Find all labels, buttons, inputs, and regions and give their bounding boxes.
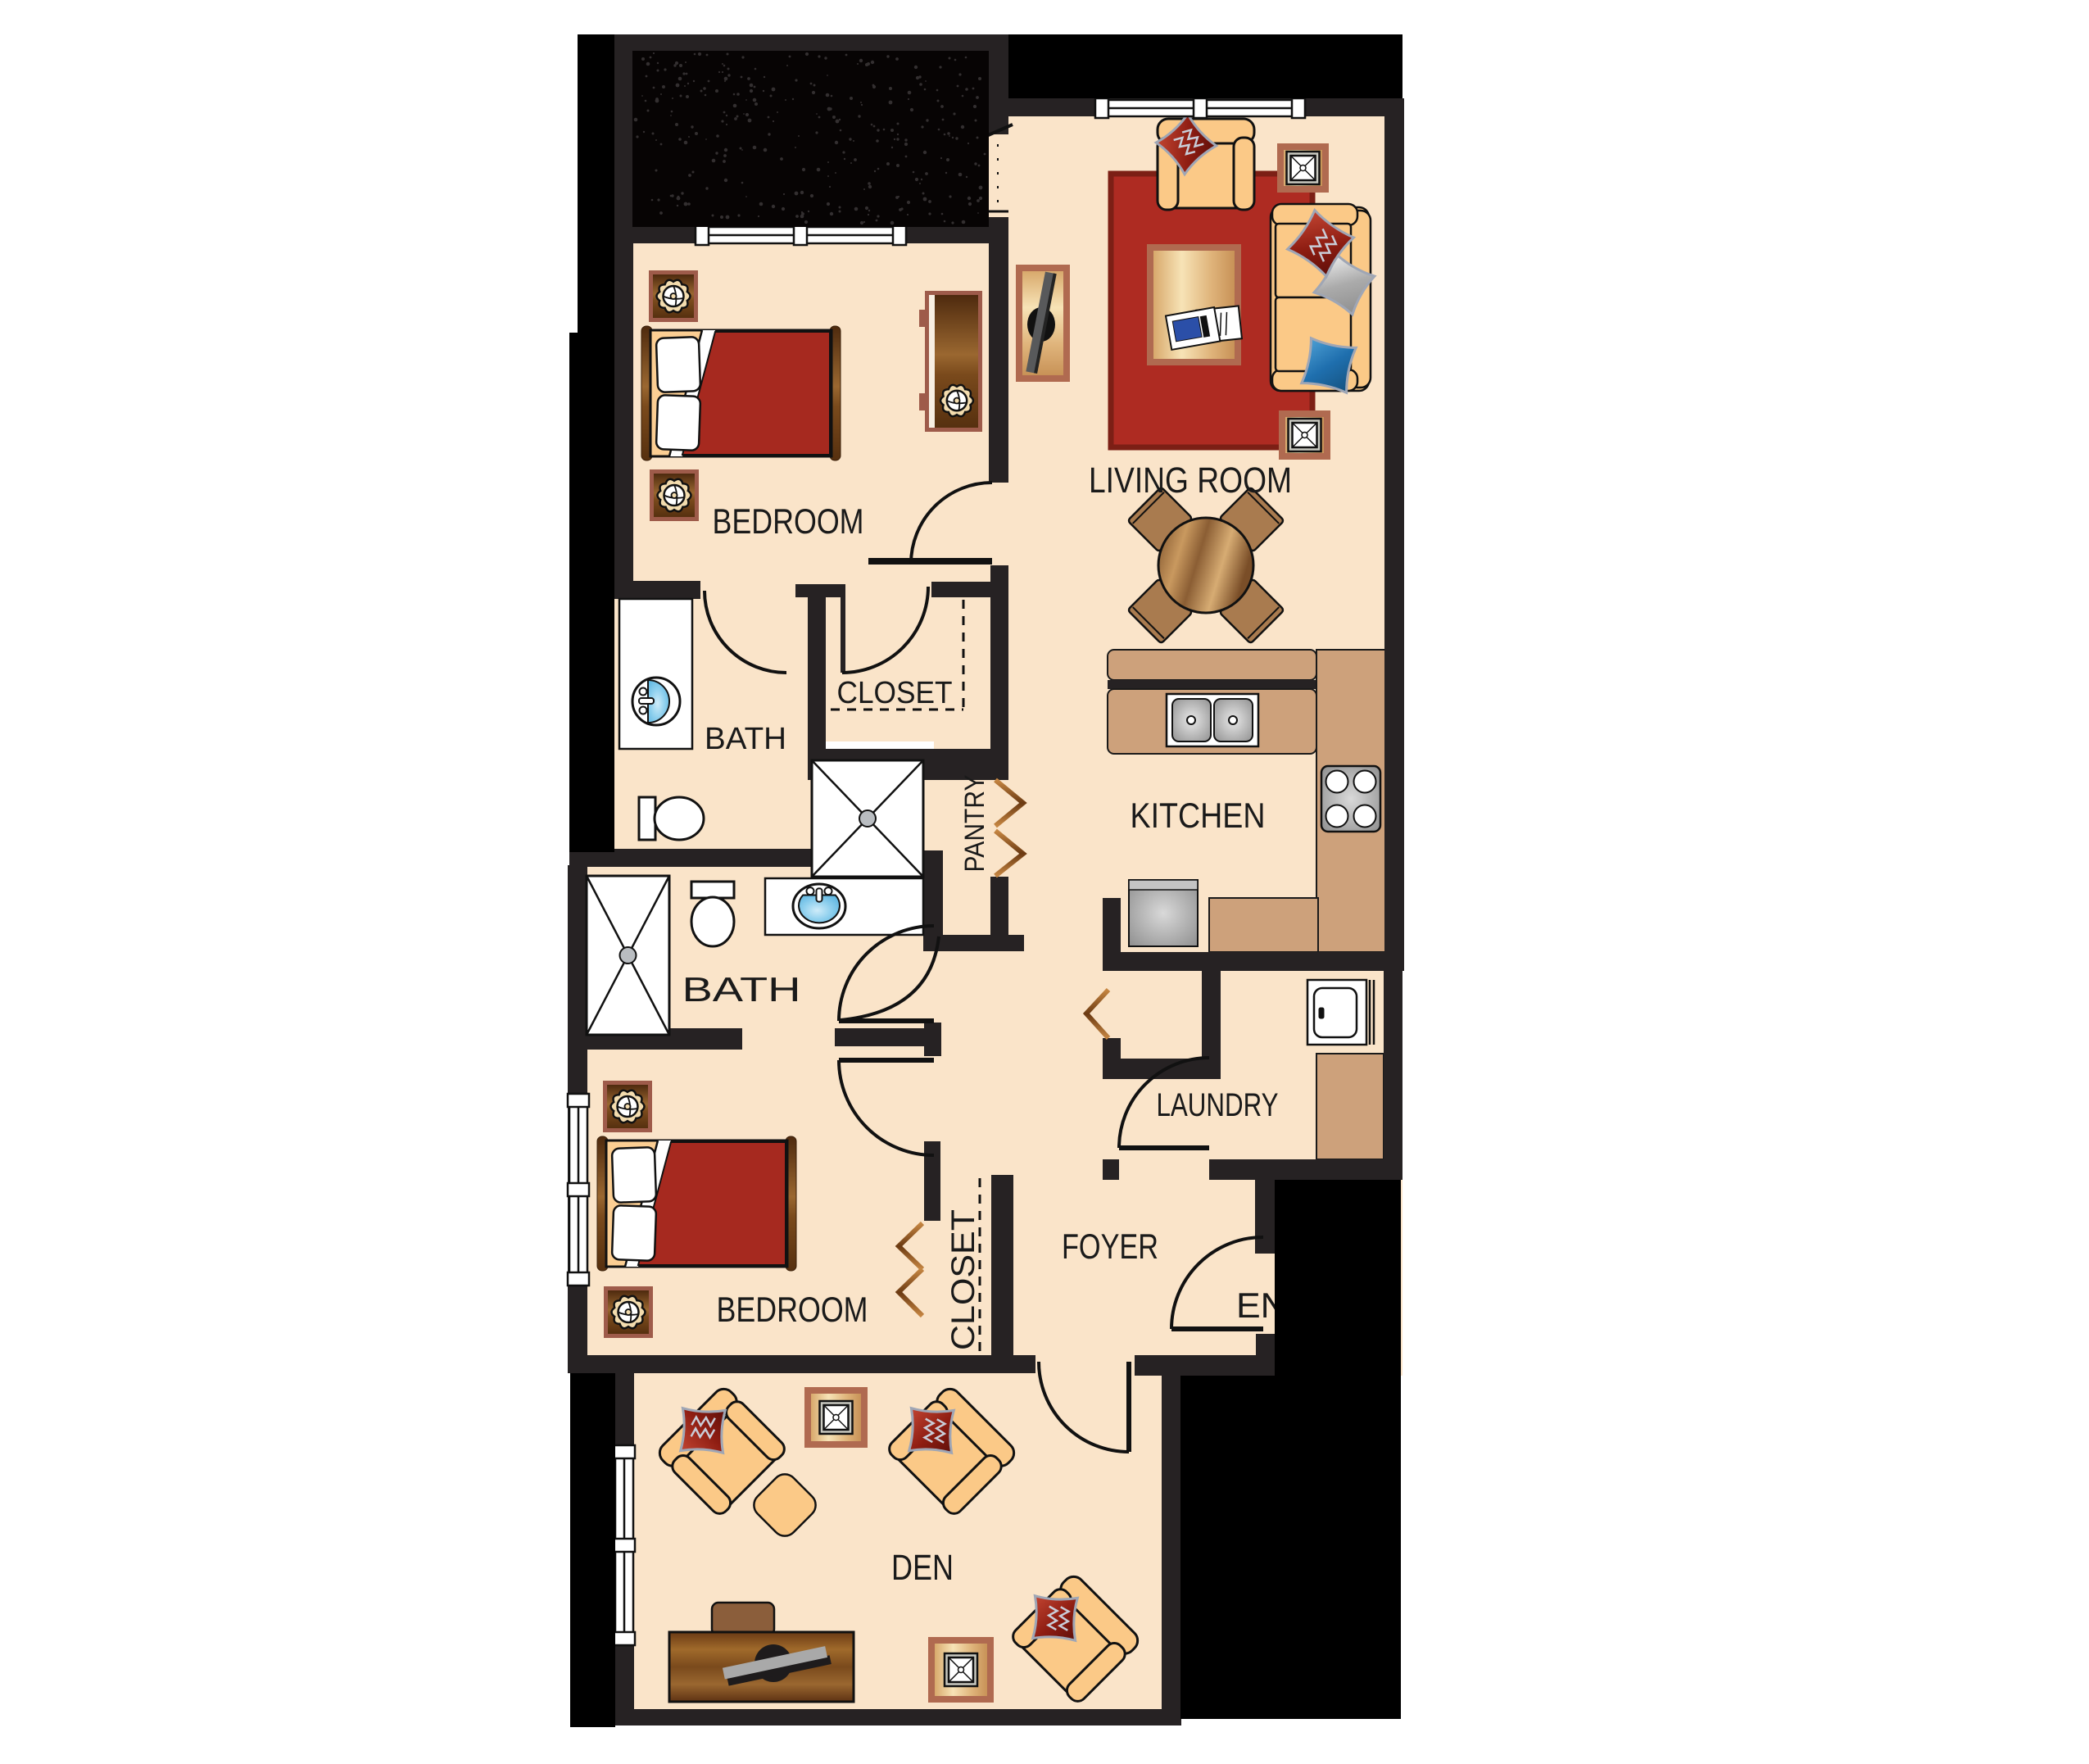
svg-text:DEN: DEN — [891, 1548, 954, 1588]
svg-text:BEDROOM: BEDROOM — [717, 1290, 868, 1330]
svg-text:LAUNDRY: LAUNDRY — [1157, 1087, 1279, 1123]
svg-text:BATH: BATH — [682, 970, 801, 1009]
svg-text:BEDROOM: BEDROOM — [713, 502, 864, 542]
svg-text:FOYER: FOYER — [1062, 1227, 1158, 1267]
svg-text:CLOSET: CLOSET — [837, 676, 953, 710]
svg-text:LIVING ROOM: LIVING ROOM — [1089, 460, 1292, 501]
svg-text:KITCHEN: KITCHEN — [1131, 796, 1266, 836]
svg-text:BATH: BATH — [705, 722, 786, 756]
svg-text:CLOSET: CLOSET — [945, 1209, 981, 1350]
svg-text:PANTRY: PANTRY — [959, 775, 990, 873]
